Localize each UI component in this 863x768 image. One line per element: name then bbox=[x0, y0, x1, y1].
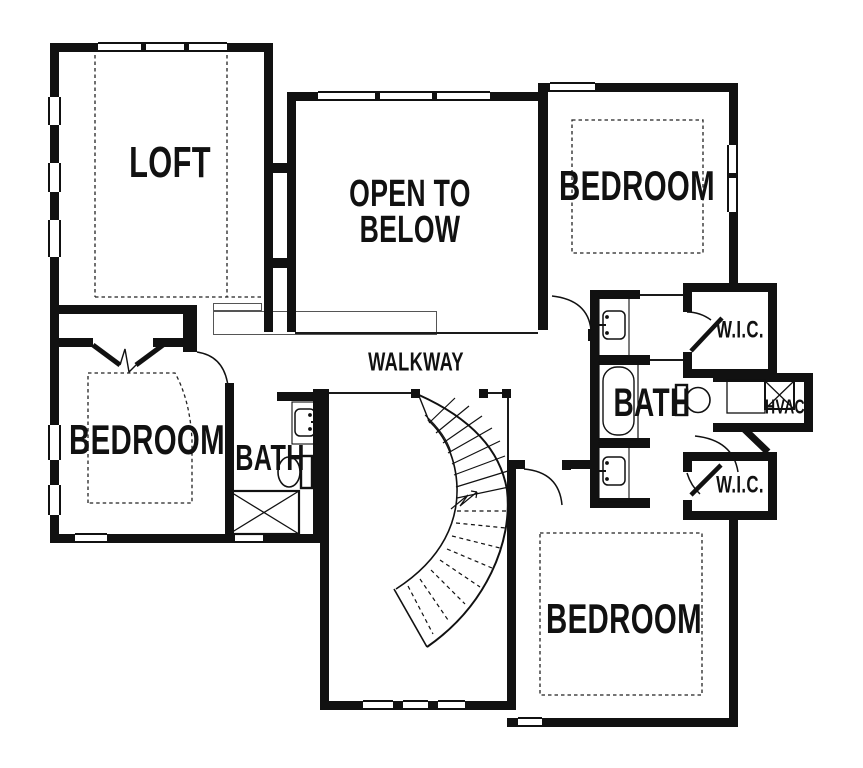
staircase-icon bbox=[394, 395, 509, 647]
room-label-hvac: HVAC bbox=[765, 399, 805, 418]
room-label-bedroom-bottom-right: BEDROOM bbox=[546, 599, 702, 639]
door-arc-icon bbox=[524, 469, 562, 505]
angled-wall bbox=[741, 426, 768, 452]
open-to-below-line1: OPEN TO bbox=[349, 176, 471, 212]
room-label-bath-right: BATH bbox=[613, 384, 690, 422]
stair-break-arrow bbox=[451, 492, 477, 509]
door-arc-icon bbox=[197, 352, 228, 386]
water-heater-icon bbox=[727, 380, 765, 413]
floor-plan: LOFT OPEN TO BELOW WALKWAY BEDROOM BEDRO… bbox=[0, 0, 863, 768]
sink-icon bbox=[599, 297, 629, 356]
room-label-bedroom-top-right: BEDROOM bbox=[559, 166, 715, 206]
room-label-wic-top: W.I.C. bbox=[716, 320, 764, 343]
shower-icon bbox=[229, 491, 299, 534]
sink-icon bbox=[599, 443, 629, 502]
room-label-walkway: WALKWAY bbox=[368, 350, 464, 375]
room-label-open-to-below: OPEN TO BELOW bbox=[349, 176, 471, 248]
open-to-below-line2: BELOW bbox=[349, 212, 471, 248]
room-label-wic-bottom: W.I.C. bbox=[716, 475, 764, 498]
plan-linework bbox=[0, 0, 863, 768]
room-label-bedroom-left: BEDROOM bbox=[69, 420, 225, 460]
room-label-loft: LOFT bbox=[129, 142, 211, 184]
room-label-bath-left: BATH bbox=[235, 441, 305, 475]
double-door-icon bbox=[93, 345, 163, 372]
door-arc-icon bbox=[552, 296, 591, 330]
